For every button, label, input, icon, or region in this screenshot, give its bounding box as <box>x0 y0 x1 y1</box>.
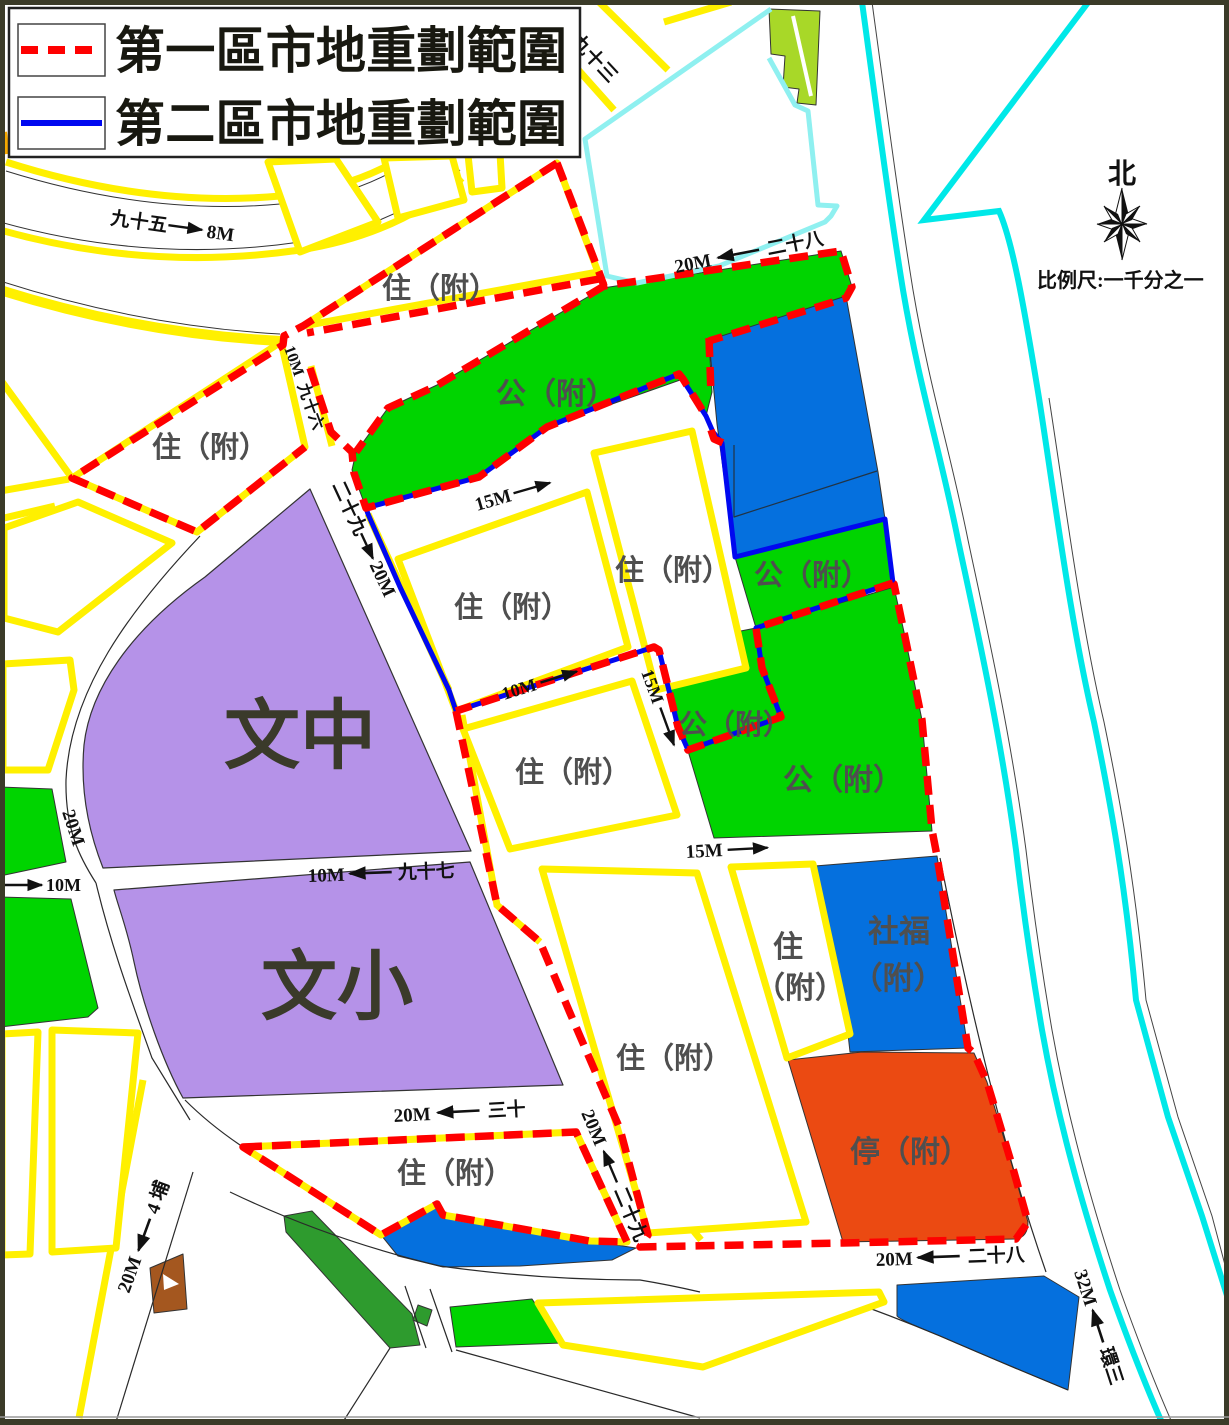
svg-text:公（附）: 公（附） <box>496 377 616 411</box>
svg-text:停（附）: 停（附） <box>850 1135 970 1169</box>
svg-text:住（附）: 住（附） <box>616 1042 732 1075</box>
svg-text:第二區市地重劃範圍: 第二區市地重劃範圍 <box>115 96 567 152</box>
svg-text:10M: 10M <box>307 865 345 887</box>
svg-text:社福: 社福 <box>868 914 930 949</box>
svg-text:第一區市地重劃範圍: 第一區市地重劃範圍 <box>115 23 567 79</box>
svg-text:10M: 10M <box>46 875 81 895</box>
svg-text:公（附）: 公（附） <box>679 708 791 741</box>
svg-text:九十七: 九十七 <box>396 859 455 884</box>
svg-text:北: 北 <box>1108 158 1136 190</box>
svg-text:8M: 8M <box>205 222 235 247</box>
svg-text:三十: 三十 <box>487 1097 526 1122</box>
svg-text:住（附）: 住（附） <box>454 591 570 624</box>
svg-text:文中: 文中 <box>224 695 376 779</box>
svg-text:住（附）: 住（附） <box>152 431 268 464</box>
svg-text:20M: 20M <box>393 1104 431 1127</box>
svg-text:住（附）: 住（附） <box>515 756 631 789</box>
svg-text:住: 住 <box>773 931 803 964</box>
svg-text:比例尺:一千分之一: 比例尺:一千分之一 <box>1037 268 1204 292</box>
svg-text:公（附）: 公（附） <box>783 763 903 797</box>
svg-text:20M: 20M <box>875 1249 913 1271</box>
svg-text:文小: 文小 <box>261 946 413 1030</box>
svg-text:二十八: 二十八 <box>967 1243 1026 1268</box>
svg-text:（附）: （附） <box>755 971 845 1005</box>
svg-text:15M: 15M <box>685 840 723 863</box>
svg-text:公（附）: 公（附） <box>754 559 870 592</box>
svg-text:住（附）: 住（附） <box>397 1157 513 1190</box>
svg-text:（附）: （附） <box>852 961 945 996</box>
svg-text:住（附）: 住（附） <box>615 554 731 587</box>
svg-text:住（附）: 住（附） <box>382 272 498 305</box>
